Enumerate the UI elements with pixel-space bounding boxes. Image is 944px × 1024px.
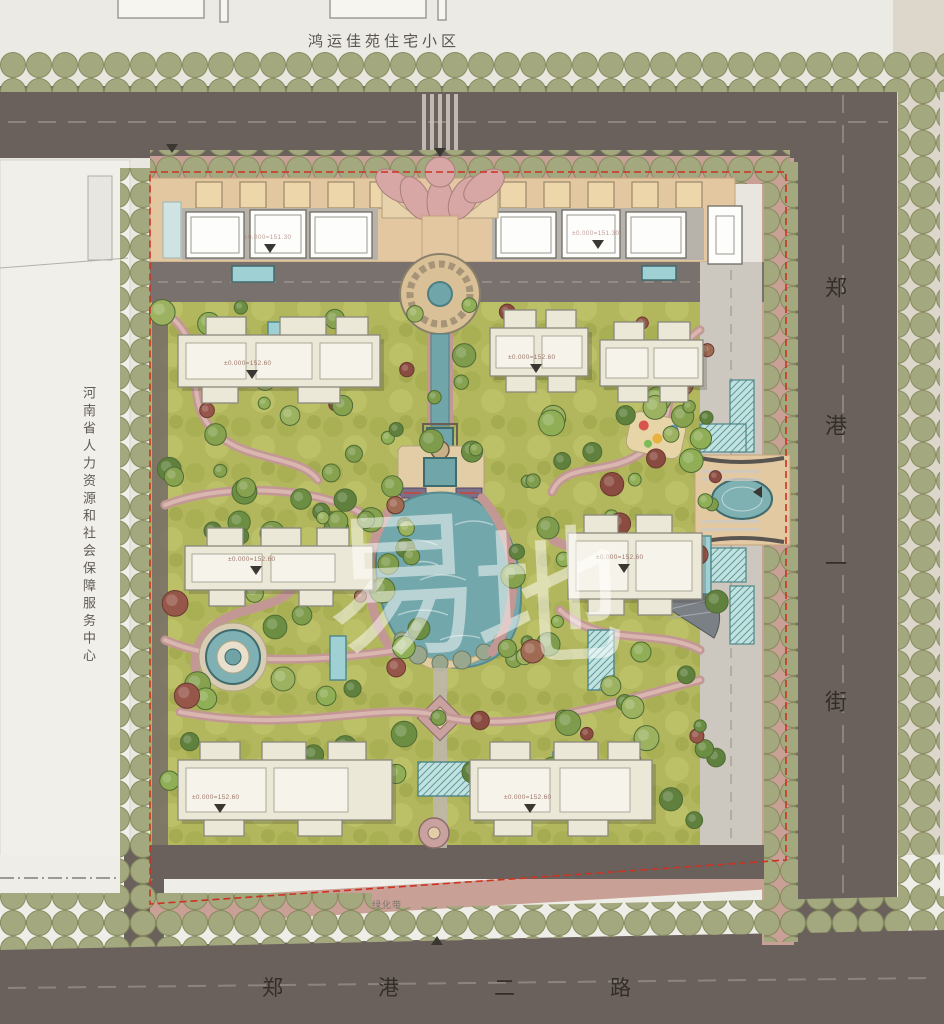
- residential-building: [470, 742, 656, 836]
- elevation-label: ±0.000=152.60: [596, 554, 643, 561]
- elevation-label: ±0.000=151.30: [244, 234, 291, 241]
- elevation-label: ±0.000=152.60: [228, 556, 275, 563]
- elevation-label: ±0.000=152.60: [508, 354, 555, 361]
- elevation-label: ±0.000=152.60: [224, 360, 271, 367]
- residential-building: [178, 742, 396, 836]
- site-plan: 鸿运佳苑住宅小区 河南省人力资源和社会保障服务中心 郑港一街 郑港二路 绿化带 …: [0, 0, 944, 1024]
- elevation-label: ±0.000=152.60: [504, 794, 551, 801]
- elevation-label: ±0.000=152.60: [192, 794, 239, 801]
- elevation-label: ±0.000=151.30: [572, 230, 619, 237]
- masterplan-drawing: [0, 0, 944, 1024]
- residential-building: [178, 317, 384, 403]
